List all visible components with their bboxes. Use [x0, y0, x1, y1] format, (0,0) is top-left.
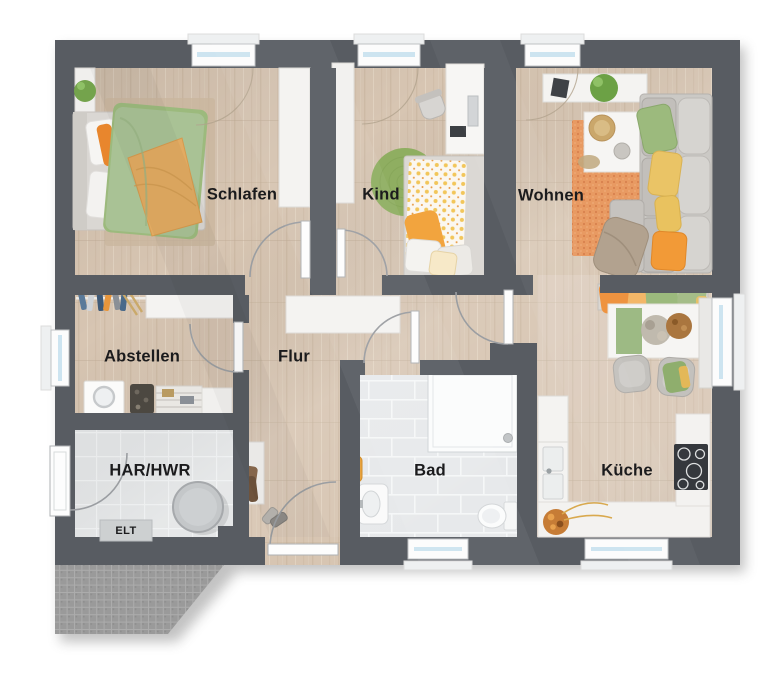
fruit-bowl [543, 509, 569, 535]
sink [543, 447, 563, 471]
bowl [666, 313, 692, 339]
room-label-har-hwr: HAR/HWR [109, 462, 190, 481]
laundry-basket [130, 384, 154, 414]
flowers [641, 315, 671, 345]
room-label-elt: ELT [115, 525, 136, 537]
room-label-abstellen: Abstellen [104, 348, 180, 367]
door [504, 290, 513, 344]
tall-cabinet [538, 396, 568, 442]
room-label-kind: Kind [362, 186, 399, 205]
room-label-bad: Bad [414, 462, 446, 481]
entrance-door [268, 544, 338, 555]
plant [590, 74, 618, 102]
floor-plan-drawing [0, 0, 775, 690]
floor-plan: Schlafen Kind Wohnen Abstellen Flur HAR/… [0, 0, 775, 690]
room-label-flur: Flur [278, 348, 310, 367]
exterior-door [50, 446, 70, 516]
room-label-schlafen: Schlafen [207, 186, 277, 205]
room-label-kueche: Küche [601, 462, 652, 481]
plant [74, 80, 96, 102]
window-sideboard [699, 298, 712, 388]
room-label-wohnen: Wohnen [518, 187, 584, 206]
